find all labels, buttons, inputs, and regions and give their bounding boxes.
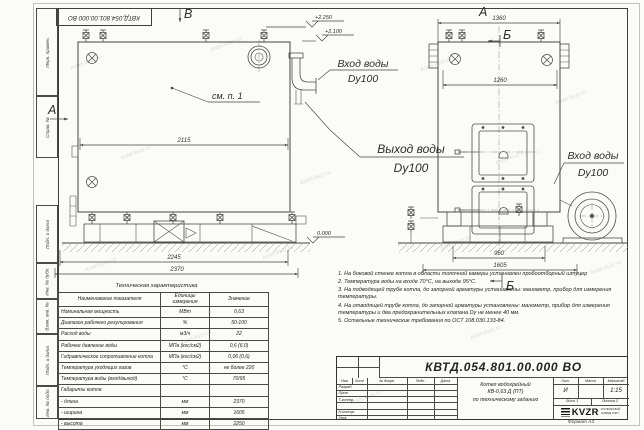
- note-2: 2. Температура воды на входе 70°С, на вы…: [338, 279, 630, 286]
- row-name: Номинальная мощность: [59, 307, 161, 318]
- tech-characteristics: Техническая характеристика Наименование …: [58, 281, 255, 430]
- svg-text:2245: 2245: [166, 255, 181, 261]
- tech-table-title: Техническая характеристика: [58, 281, 255, 292]
- svg-text:0.000: 0.000: [317, 231, 332, 237]
- rev-col-ndok: № докум.: [367, 378, 407, 384]
- svg-text:Вход воды: Вход воды: [568, 150, 619, 162]
- svg-text:Dy100: Dy100: [394, 161, 429, 175]
- table-row: - высотамм2250: [59, 418, 269, 429]
- fan-blower: [560, 192, 622, 243]
- rev-col-data: Дата: [434, 378, 457, 384]
- row-unit: м3/ч: [161, 329, 210, 340]
- dim-2115: 2115: [80, 138, 288, 150]
- row-value: 0,63: [210, 307, 269, 318]
- col-header: Единицы измерения: [161, 293, 210, 307]
- note-5: 5. Остальные технические требования по О…: [338, 318, 630, 325]
- logo-caption-line2: ЗАВОД РЭП: [601, 412, 620, 416]
- row-name: Диапазон рабочего регулирования: [59, 318, 161, 329]
- svg-text:+2.100: +2.100: [325, 29, 343, 35]
- table-row: Номинальная мощностьМВт0,63: [59, 307, 269, 318]
- row-name: - ширина: [59, 407, 161, 418]
- row-unit: мм: [161, 407, 210, 418]
- level-2250: +2.250: [266, 15, 344, 27]
- row-name: Температура уходящих газов: [59, 362, 161, 373]
- sheets-total: Листов 2: [591, 398, 629, 405]
- callout-see-p1: см. п. 1: [171, 87, 260, 102]
- tech-table: Наименование показателя Единицы измерени…: [58, 292, 269, 430]
- row-value: [210, 385, 269, 396]
- row-unit: [161, 385, 210, 396]
- note-4: 4. На отводящей трубе котла, до запорной…: [338, 303, 630, 317]
- title-block: КВТД.054.801.00.000 ВО Изм Лист № докум.…: [336, 356, 628, 420]
- label-inlet-right: Вход воды Dy100: [554, 150, 624, 184]
- kvzr-logo-text: KVZR: [572, 407, 599, 418]
- row-value: 2250: [210, 418, 269, 429]
- table-row: Расход водым3/ч22: [59, 329, 269, 340]
- svg-text:Б: Б: [503, 28, 511, 42]
- svg-text:1360: 1360: [492, 16, 506, 22]
- doc-number: КВТД.054.801.00.000 ВО: [379, 357, 627, 378]
- technical-notes: 1. На боковой стенке котла в области топ…: [338, 271, 630, 326]
- row-name: Температура воды (вход/выход): [59, 374, 161, 385]
- view-title-a: А: [478, 5, 487, 19]
- row-name: Рабочее давление воды: [59, 340, 161, 351]
- product-name: Котел водогрейный КВ-0,63 Д (ПТ) по техн…: [457, 378, 553, 420]
- table-row: Температура уходящих газов°Сне более 220: [59, 362, 269, 373]
- svg-text:960: 960: [494, 251, 505, 257]
- section-marker-a: А: [47, 103, 56, 117]
- dim-2370: 2370: [55, 267, 298, 278]
- row-unit: °С: [161, 362, 210, 373]
- product-name-line3: по техническому заданию: [458, 397, 553, 405]
- table-row: Рабочее давление водыМПа (кгс/см2)0,6 (6…: [59, 340, 269, 351]
- row-value: 2370: [210, 396, 269, 407]
- row-value: не более 220: [210, 362, 269, 373]
- table-row: Температура воды (вход/выход)°С70/95: [59, 374, 269, 385]
- format-label: Формат А3: [546, 420, 616, 425]
- label-outlet: Выход воды Dy100: [305, 102, 464, 175]
- row-value: 1605: [210, 407, 269, 418]
- level-0000: 0.000: [307, 231, 345, 243]
- table-row: - ширинамм1605: [59, 407, 269, 418]
- inlet-elbow: [289, 53, 316, 104]
- dim-1260: 1260: [443, 70, 557, 89]
- sheet-number: Лист 1: [553, 398, 591, 405]
- col-header: Наименование показателя: [59, 293, 161, 307]
- lower-door: [455, 186, 540, 234]
- table-row: Гидравлическое сопротивление котлаМПа (к…: [59, 351, 269, 362]
- view-marker-v: В: [184, 7, 192, 21]
- svg-text:+2.250: +2.250: [315, 15, 333, 21]
- row-name: Расход воды: [59, 329, 161, 340]
- row-name: Габариты котла: [59, 385, 161, 396]
- svg-text:1260: 1260: [493, 78, 507, 84]
- drawing-sheet: kotel-kvzr.ru kotel-kvzr.ru kotel-kvzr.r…: [0, 0, 644, 430]
- rev-col-podp: Подп.: [407, 378, 434, 384]
- svg-text:Dy100: Dy100: [578, 167, 609, 179]
- svg-text:Вход воды: Вход воды: [338, 58, 389, 70]
- row-name: - длина: [59, 396, 161, 407]
- label-inlet-top: Вход воды Dy100: [318, 58, 398, 85]
- ground-hatch: [62, 243, 310, 252]
- row-value: 0,6 (6,0): [210, 340, 269, 351]
- product-name-line2: КВ-0,63 Д (ПТ): [458, 389, 553, 397]
- row-name: - высота: [59, 418, 161, 429]
- svg-text:1605: 1605: [493, 263, 507, 269]
- table-row: Диапазон рабочего регулирования%50-100: [59, 318, 269, 329]
- tech-table-header: Наименование показателя Единицы измерени…: [59, 293, 269, 307]
- kvzr-logo-caption: КОТЕЛЬНЫЙ ЗАВОД РЭП: [601, 408, 620, 415]
- row-value: 70/95: [210, 374, 269, 385]
- row-unit: °С: [161, 374, 210, 385]
- row-unit: МПа (кгс/см2): [161, 340, 210, 351]
- row-unit: %: [161, 318, 210, 329]
- scale-value: 1:15: [603, 384, 629, 398]
- row-unit: МПа (кгс/см2): [161, 351, 210, 362]
- note-3: 3. На подводящей трубе котла, до запорно…: [338, 287, 630, 301]
- front-view: 2115 2245 2370 В А см. п.: [47, 7, 354, 278]
- svg-text:2115: 2115: [177, 138, 192, 144]
- row-name: Гидравлическое сопротивление котла: [59, 351, 161, 362]
- svg-text:см. п. 1: см. п. 1: [212, 91, 243, 101]
- dim-2245: 2245: [60, 250, 288, 266]
- section-marker-b-top: Б: [488, 28, 511, 47]
- level-2100: +2.100: [302, 29, 354, 41]
- svg-text:Выход воды: Выход воды: [377, 142, 445, 156]
- table-row: Габариты котла: [59, 385, 269, 396]
- base-frame: [84, 216, 306, 242]
- svg-text:2370: 2370: [169, 267, 184, 273]
- divider: [358, 357, 359, 378]
- svg-text:Dy100: Dy100: [348, 73, 379, 85]
- product-name-line1: Котел водогрейный: [458, 382, 553, 390]
- row-value: 22: [210, 329, 269, 340]
- row-unit: мм: [161, 418, 210, 429]
- ground-hatch: [398, 243, 628, 252]
- mass-header: Масса: [578, 378, 603, 384]
- col-header: Значение: [210, 293, 269, 307]
- note-1: 1. На боковой стенке котла в области топ…: [338, 271, 630, 278]
- row-unit: мм: [161, 396, 210, 407]
- row-value: 50-100: [210, 318, 269, 329]
- kvzr-logo-icon: [561, 408, 570, 417]
- sign-utv: Утв.: [337, 415, 367, 421]
- upper-door: [455, 124, 540, 182]
- row-value: 0,06 (0,6): [210, 351, 269, 362]
- side-base: [443, 212, 553, 242]
- table-row: - длинамм2370: [59, 396, 269, 407]
- lit-value: И: [553, 384, 578, 398]
- row-unit: МВт: [161, 307, 210, 318]
- manufacturer-logo: KVZR КОТЕЛЬНЫЙ ЗАВОД РЭП: [553, 405, 628, 420]
- manhole-flange: [248, 40, 270, 74]
